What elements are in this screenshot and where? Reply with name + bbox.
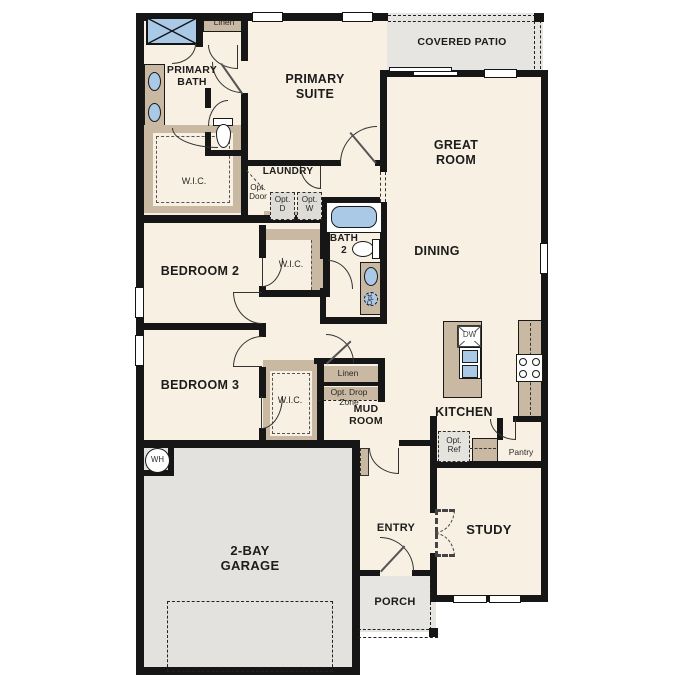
room-label-bath2: BATH 2	[326, 233, 362, 257]
opt-dryer-label: Opt. D	[271, 195, 294, 213]
label-wic-bed2: W.I.C.	[270, 259, 312, 269]
wall	[205, 88, 211, 108]
wall	[205, 150, 247, 156]
label-opt-door: Opt. Door	[245, 183, 271, 201]
wic2-shelf-top	[263, 229, 323, 240]
burner	[519, 370, 527, 378]
sink	[148, 103, 161, 122]
counter-dash-line	[470, 448, 496, 449]
wall	[378, 358, 385, 402]
sliding-door	[413, 71, 458, 76]
room-label-bedroom3: BEDROOM 3	[148, 378, 252, 393]
window	[135, 335, 144, 366]
label-pantry: Pantry	[503, 448, 539, 458]
toilet-tank	[372, 239, 380, 259]
bathtub	[331, 206, 377, 228]
water-heater-label: WH	[145, 456, 170, 465]
wall	[430, 416, 437, 463]
garage-door-outline	[167, 601, 333, 672]
wall	[259, 428, 266, 444]
room-label-mud-room: MUD ROOM	[338, 403, 394, 428]
label-linen-top: Linen	[204, 18, 244, 28]
room-label-study: STUDY	[460, 522, 518, 537]
sink-basin	[462, 350, 478, 363]
room-label-laundry: LAUNDRY	[258, 166, 318, 178]
sink-basin	[462, 365, 478, 378]
room-label-great-room: GREAT ROOM	[420, 138, 492, 168]
porch-post	[429, 628, 438, 637]
room-label-porch: PORCH	[368, 596, 422, 609]
label-linen-hall: Linen	[320, 369, 376, 379]
porch-dash-bottom	[358, 629, 434, 630]
window	[453, 595, 487, 603]
wall	[430, 461, 437, 513]
window	[540, 243, 548, 274]
burner	[532, 370, 540, 378]
mudroom-cabinet	[360, 448, 369, 476]
room-label-covered-patio: COVERED PATIO	[412, 36, 512, 48]
room-label-primary-bath: PRIMARY BATH	[160, 64, 224, 89]
room-label-bedroom2: BEDROOM 2	[148, 264, 252, 279]
window	[489, 595, 521, 603]
wall	[380, 70, 387, 172]
wall	[136, 323, 266, 330]
wall	[259, 225, 266, 258]
room-label-garage: 2-BAY GARAGE	[204, 543, 296, 574]
porch-dash-bottom2	[358, 637, 438, 638]
wall	[317, 382, 384, 386]
window	[342, 12, 373, 22]
shower	[146, 17, 198, 45]
room-label-primary-suite: PRIMARY SUITE	[272, 72, 358, 102]
wall	[352, 570, 380, 576]
great-room-opening-dash	[380, 172, 386, 202]
sink	[364, 267, 378, 286]
window	[484, 69, 517, 78]
wall	[259, 290, 330, 297]
room-label-dining: DINING	[407, 244, 467, 259]
burner	[519, 358, 527, 366]
opt-washer-label: Opt. W	[298, 195, 321, 213]
wall	[430, 461, 548, 468]
dishwasher-label: DW	[457, 331, 482, 340]
window	[135, 287, 144, 318]
wall	[541, 70, 548, 601]
wall	[412, 570, 436, 576]
label-wic-primary: W.I.C.	[168, 176, 220, 186]
floor-plan: Opt. DW WH Opt. D Opt. W Opt. Ref	[0, 0, 687, 687]
optional-sink-label: Opt.	[367, 288, 375, 310]
wall	[320, 317, 387, 324]
patio-post	[534, 13, 544, 22]
burner	[532, 358, 540, 366]
wall	[352, 440, 360, 675]
label-wic-bed3: W.I.C.	[268, 395, 312, 405]
room-label-kitchen: KITCHEN	[432, 405, 496, 420]
wall	[259, 323, 266, 337]
window	[252, 12, 283, 22]
wall	[513, 416, 543, 422]
room-label-entry: ENTRY	[372, 522, 420, 535]
pantry-counter	[472, 438, 498, 463]
wall	[259, 367, 266, 398]
opt-ref-label: Opt. Ref	[440, 436, 468, 454]
porch-dash-right	[430, 577, 431, 635]
